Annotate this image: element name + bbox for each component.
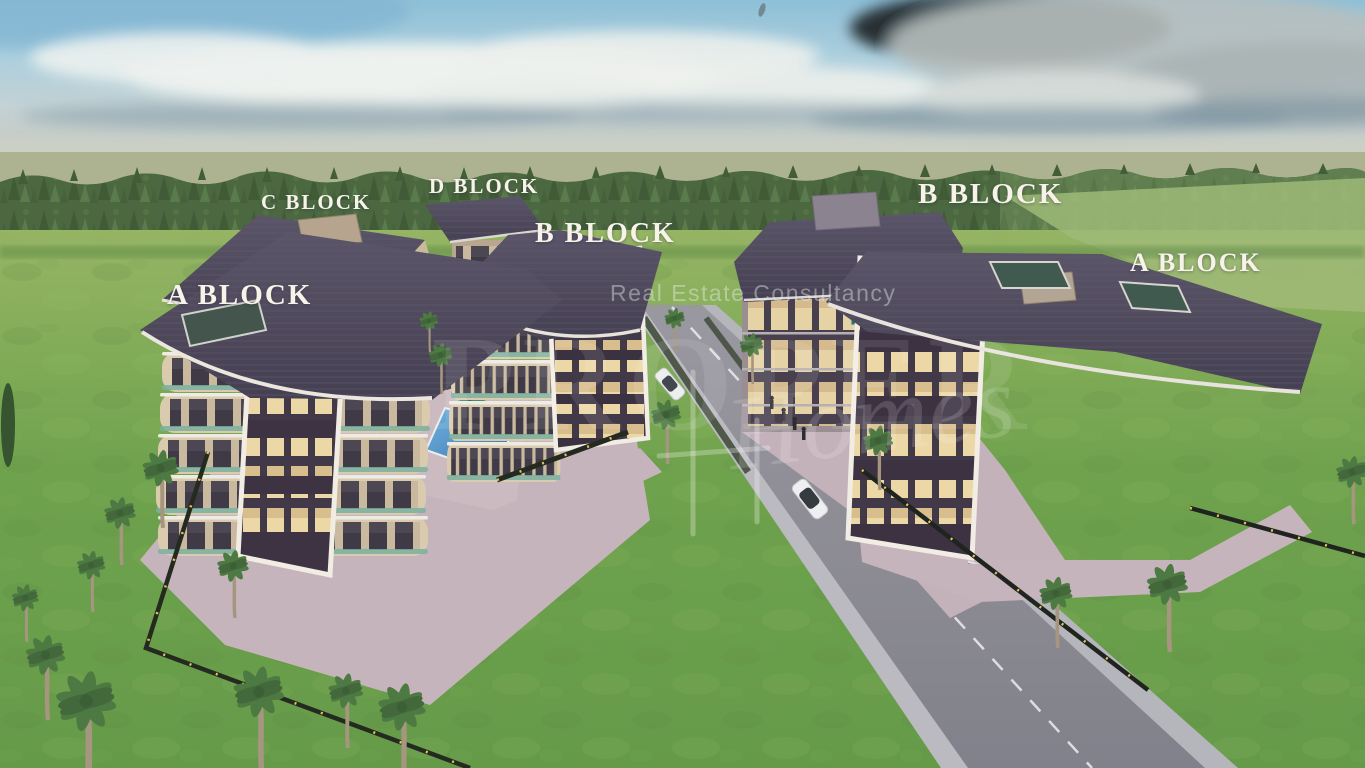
block-label-d-left: D BLOCK (429, 176, 539, 197)
aerial-render: Real Estate Consultancy PROPER Homes A B… (0, 0, 1365, 768)
block-label-a-right: A BLOCK (1130, 250, 1262, 276)
block-label-a-left: A BLOCK (167, 281, 312, 310)
watermark-tagline: Real Estate Consultancy (610, 280, 896, 307)
block-label-c-left: C BLOCK (261, 192, 371, 213)
block-label-b-right: B BLOCK (918, 180, 1063, 209)
block-label-b-left: B BLOCK (535, 220, 676, 248)
